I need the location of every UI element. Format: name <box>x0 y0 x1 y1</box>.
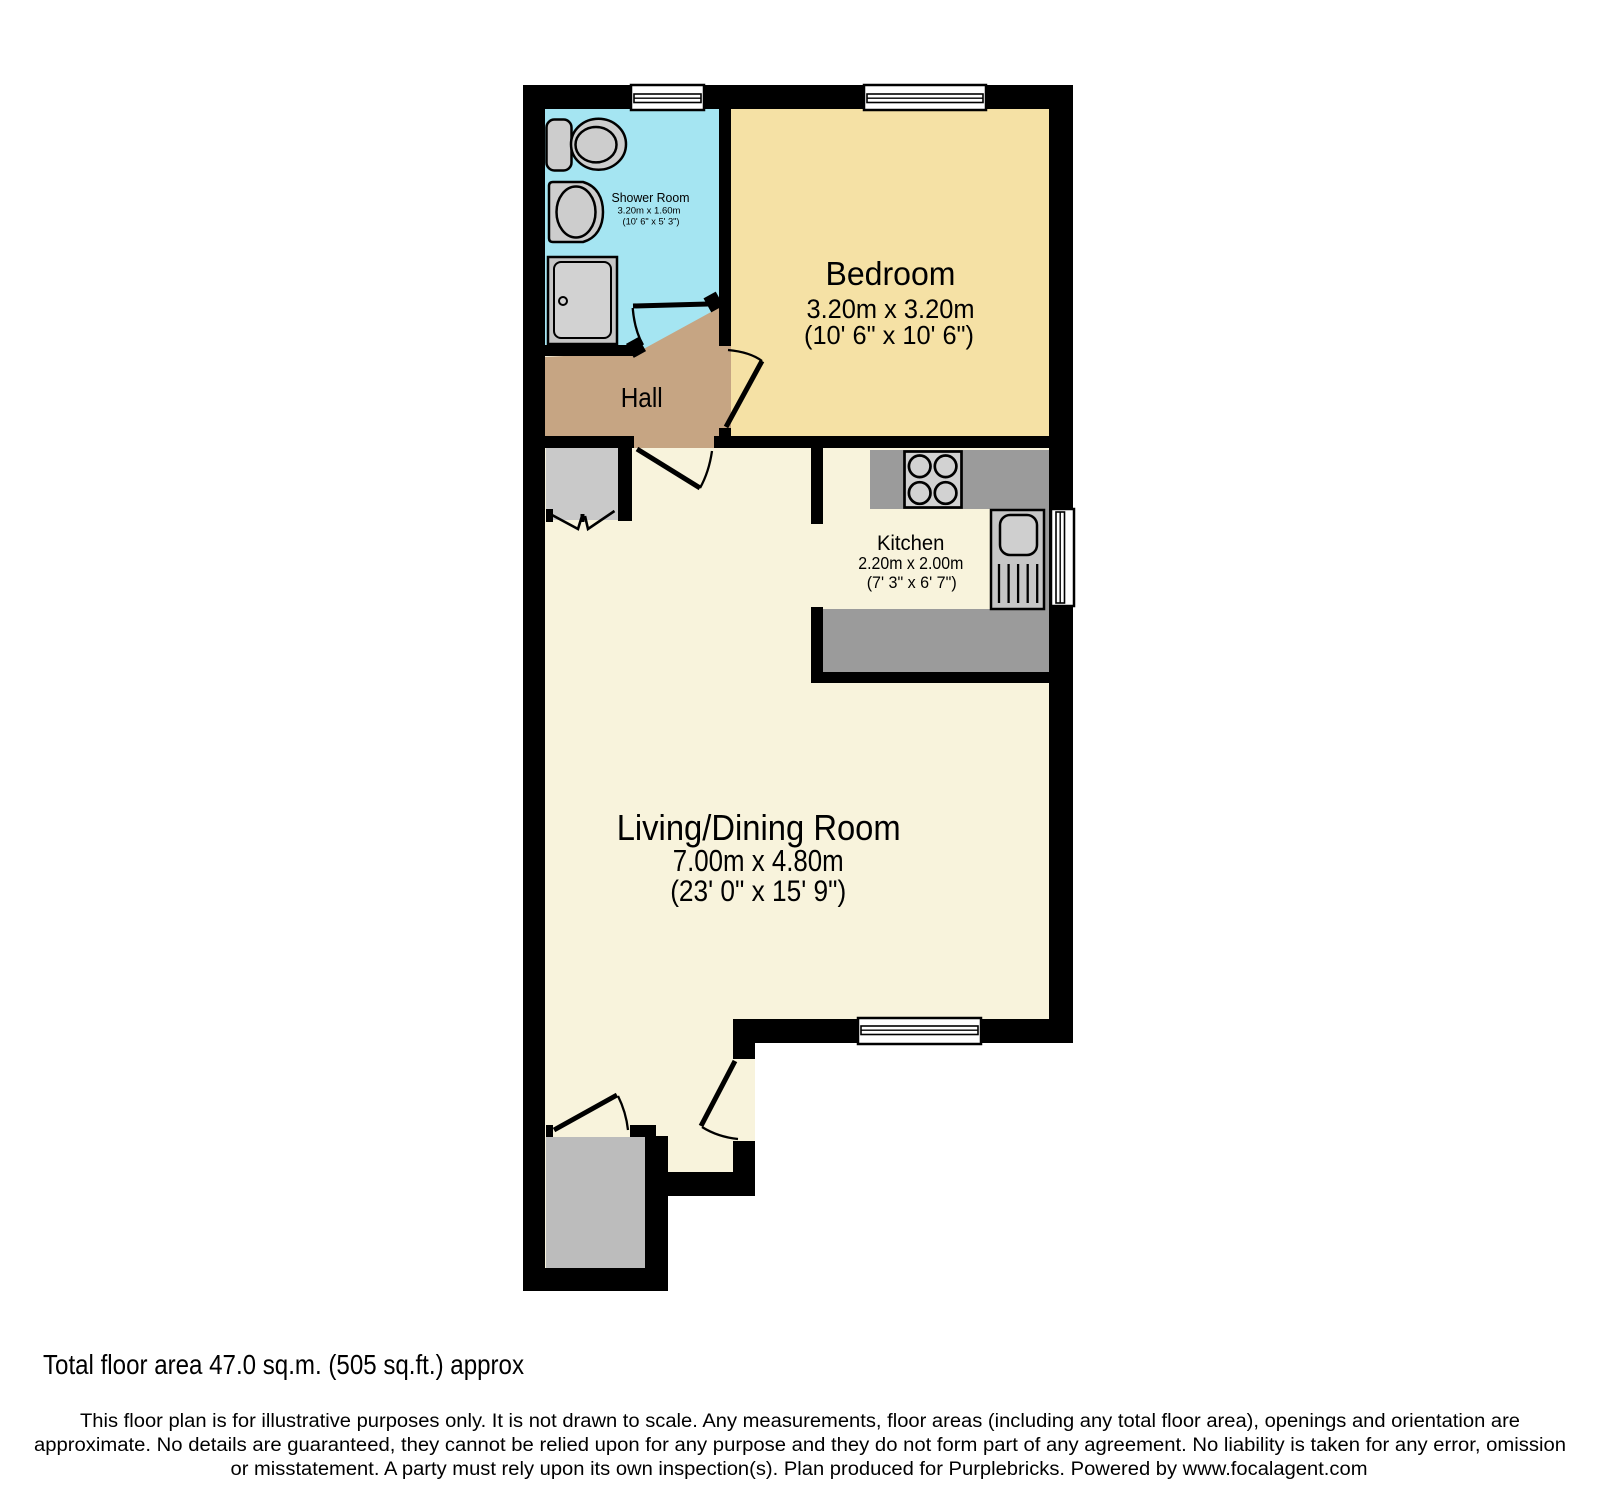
svg-text:This floor plan is for illustr: This floor plan is for illustrative purp… <box>80 1411 1520 1432</box>
svg-text:(23' 0" x 15' 9"): (23' 0" x 15' 9") <box>670 875 846 908</box>
svg-text:(10' 6" x 10' 6"): (10' 6" x 10' 6") <box>804 320 974 350</box>
svg-text:(7' 3" x 6' 7"): (7' 3" x 6' 7") <box>867 573 957 592</box>
svg-text:Hall: Hall <box>621 382 663 413</box>
svg-text:approximate. No details are gu: approximate. No details are guaranteed, … <box>34 1435 1566 1456</box>
svg-text:7.00m x 4.80m: 7.00m x 4.80m <box>673 843 844 878</box>
svg-text:Bedroom: Bedroom <box>826 255 956 292</box>
svg-text:(10' 6" x 5' 3"): (10' 6" x 5' 3") <box>623 217 680 228</box>
svg-text:Living/Dining Room: Living/Dining Room <box>617 807 901 848</box>
svg-text:Shower Room: Shower Room <box>612 190 690 205</box>
svg-text:3.20m x 1.60m: 3.20m x 1.60m <box>618 206 681 217</box>
svg-text:Total floor area 47.0 sq.m. (5: Total floor area 47.0 sq.m. (505 sq.ft.)… <box>43 1349 524 1380</box>
svg-text:Kitchen: Kitchen <box>877 531 945 555</box>
svg-text:2.20m x 2.00m: 2.20m x 2.00m <box>858 553 963 573</box>
svg-text:or misstatement. A party must: or misstatement. A party must rely upon … <box>231 1459 1368 1480</box>
